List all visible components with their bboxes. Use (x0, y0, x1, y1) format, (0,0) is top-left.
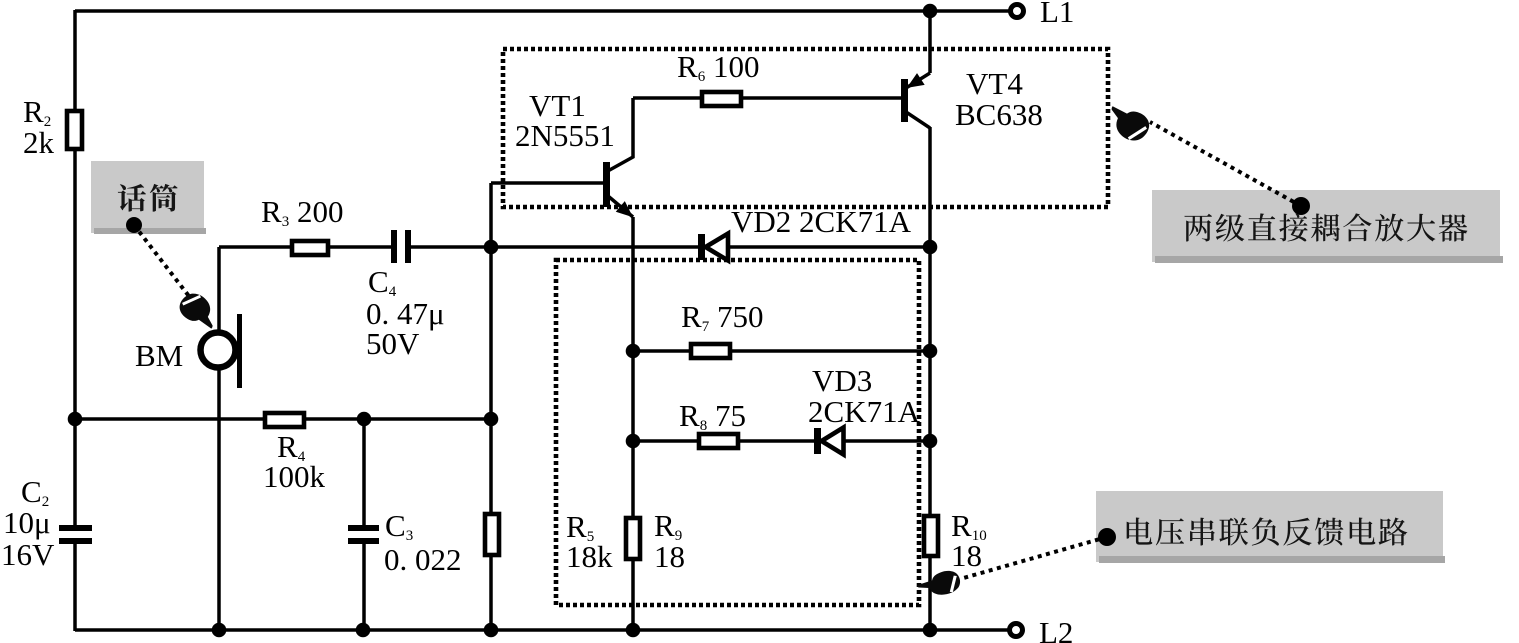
svg-text:R8 75: R8 75 (679, 398, 746, 434)
svg-text:VD3: VD3 (812, 363, 872, 398)
svg-text:L2: L2 (1039, 615, 1073, 643)
svg-text:R6 100: R6 100 (677, 49, 759, 85)
svg-text:BM: BM (135, 338, 183, 373)
svg-text:0. 022: 0. 022 (384, 542, 462, 577)
svg-text:R3 200: R3 200 (261, 194, 343, 230)
svg-text:L1: L1 (1040, 0, 1074, 29)
svg-text:18k: 18k (566, 539, 613, 574)
svg-text:2k: 2k (23, 125, 55, 160)
svg-text:R7 750: R7 750 (681, 299, 763, 335)
svg-text:18: 18 (654, 539, 685, 574)
svg-text:BC638: BC638 (955, 97, 1043, 132)
svg-text:2CK71A: 2CK71A (808, 394, 921, 429)
svg-text:100k: 100k (263, 459, 326, 494)
svg-text:50V: 50V (366, 326, 420, 361)
svg-text:10μ: 10μ (3, 505, 51, 540)
svg-text:2N5551: 2N5551 (515, 118, 615, 153)
svg-text:18: 18 (951, 538, 982, 573)
svg-text:16V: 16V (1, 537, 55, 572)
svg-text:VT4: VT4 (966, 66, 1023, 101)
svg-text:VD2 2CK71A: VD2 2CK71A (731, 204, 912, 239)
